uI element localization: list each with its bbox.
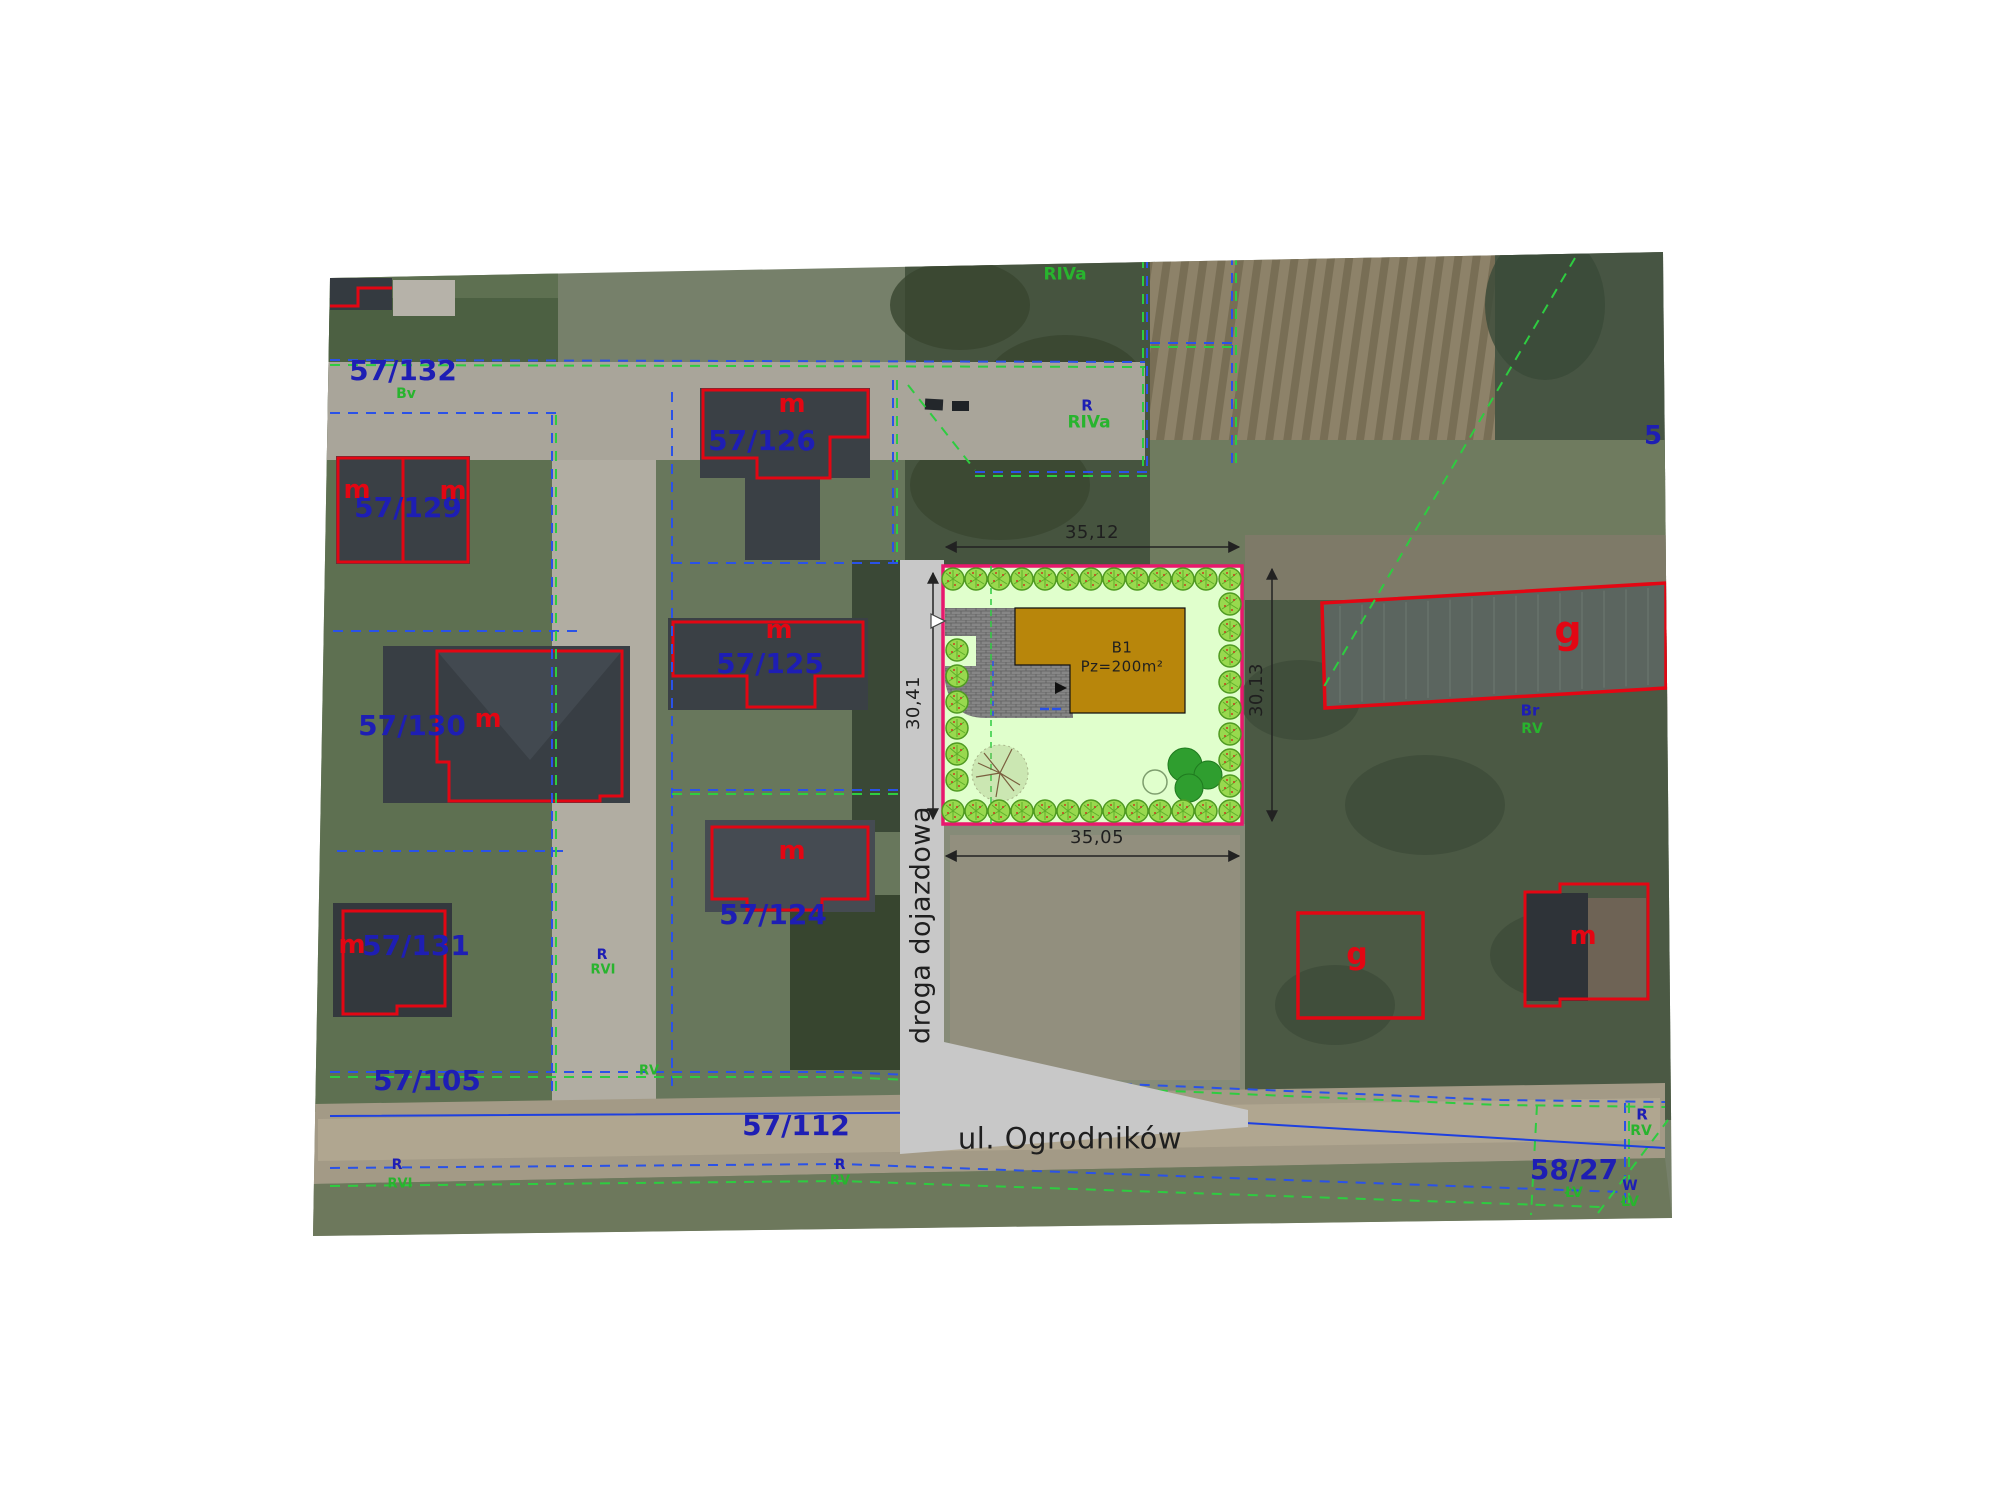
existing-tree bbox=[972, 745, 1028, 801]
aerial-map bbox=[0, 0, 2000, 1500]
dirt-yard bbox=[950, 835, 1240, 1080]
plot-plan bbox=[942, 566, 1242, 824]
site-plan-page: 57/132Bv57/129mm57/126m57/125m57/124m57/… bbox=[0, 0, 2000, 1500]
